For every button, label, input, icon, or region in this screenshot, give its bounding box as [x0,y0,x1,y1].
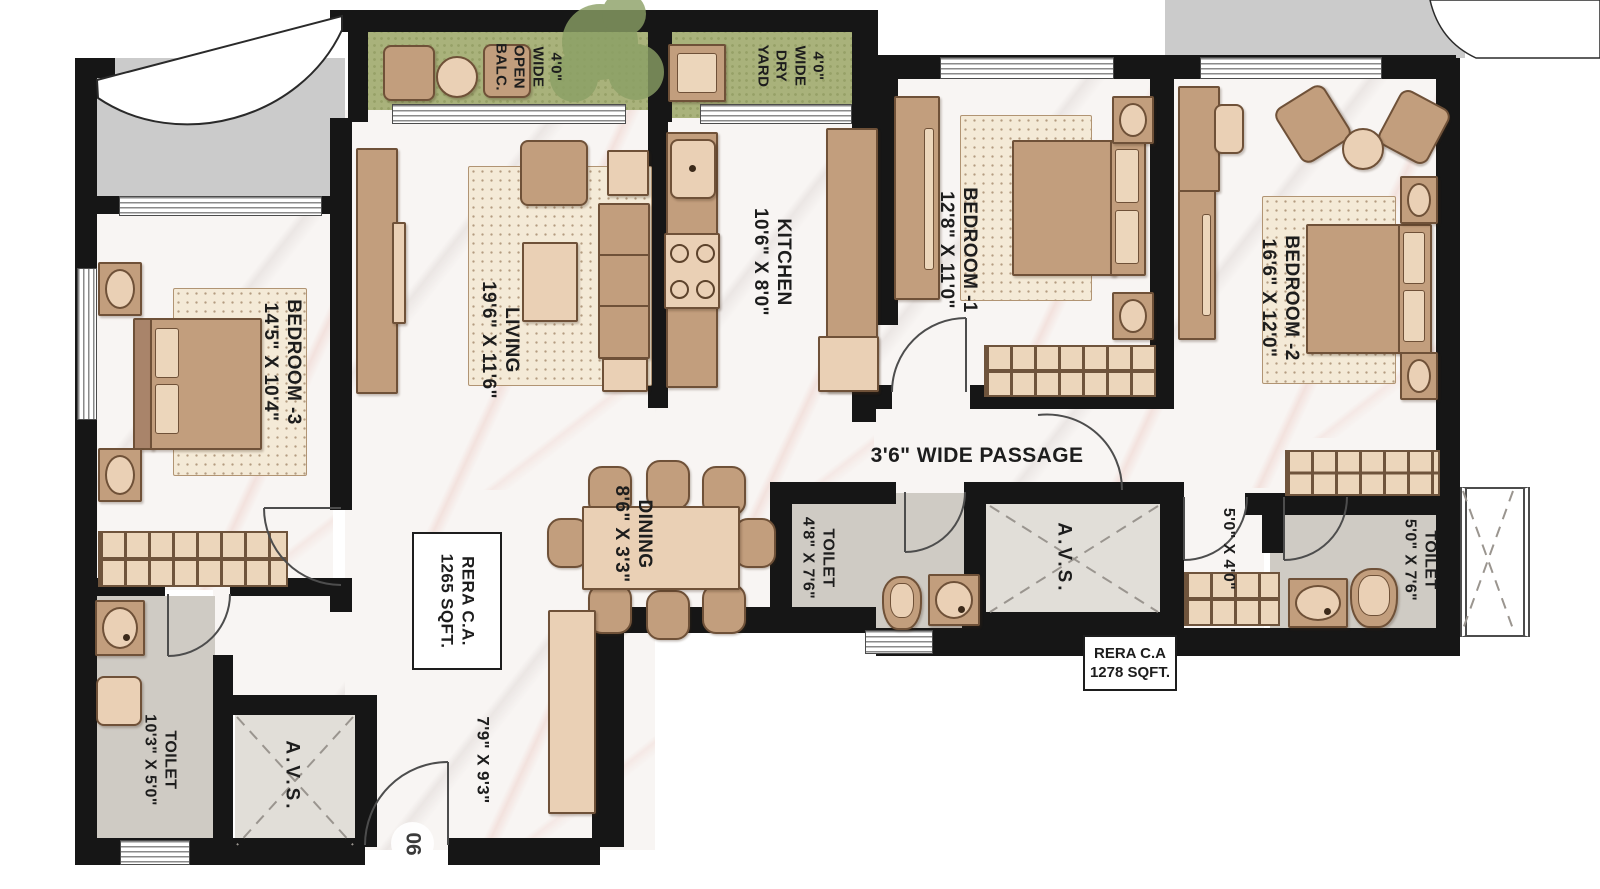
wall-top-balcony [330,10,878,32]
kitchen-fridge [818,336,879,392]
wall-terrace-nub [95,58,115,78]
floor-plan: 4'0" WIDE OPEN BALC. 4'0" WIDE DRY YARD … [0,0,1600,889]
room-dims: 19'6" X 11'6" [477,281,500,399]
basin-bowl [102,607,138,649]
basin-tap-icon [1324,608,1331,615]
dining-table [582,506,740,590]
wall-avs2-top [213,695,377,715]
bed3 [150,318,262,450]
window-bedroom3-top [119,196,322,216]
wall-avs1-right [1160,482,1184,638]
window-toilet1 [865,630,933,654]
sofa-living [598,203,650,359]
sofa-seam [600,254,648,256]
dry-yard-label-line: YARD [753,45,771,88]
window-bedroom3-left [77,268,97,420]
room-name: DINING [633,500,656,569]
avs1-label: A.V.S. [1052,522,1075,593]
bed1-nightstand-top [1112,96,1154,144]
room-dims: 10'6" X 8'0" [749,208,772,316]
bed1-nightstand-bottom [1112,292,1154,340]
wall-terrace-window-endR [318,196,346,214]
bed2-pillow-2 [1403,290,1425,342]
room-dims: 4'8" X 7'6" [798,517,818,599]
basin-bowl [935,581,973,619]
toilet1-basin [928,574,980,626]
basin-tap-icon [958,606,965,613]
avs-text: A.V.S. [280,740,303,811]
dresser-panel [1202,214,1211,316]
armchair-living [520,140,588,206]
wall-bed3-living-low [330,578,352,612]
wall-step-vertical [592,607,624,847]
wardrobe-bedroom2 [1285,450,1440,496]
dining-chair [646,590,690,640]
rera-inner-box: RERA C.A. 1265 SQFT. [412,532,502,670]
room-name: BEDROOM -2 [1280,235,1303,360]
dry-yard-label-line: WIDE [790,46,808,87]
top-right-ledge [1165,0,1465,58]
kitchen-stove [664,233,720,309]
dining-chair [734,518,776,568]
bed2 [1306,224,1406,354]
basin-tap-icon [123,634,130,641]
rera-line: RERA C.A. [457,556,478,646]
duct-shaft [1460,487,1530,637]
washing-machine [668,44,726,102]
toilet2-wc [1350,568,1398,628]
desk-chair-bedroom2 [1214,104,1244,154]
wardrobe-bedroom1 [984,345,1156,397]
room-name: TOILET [1420,531,1440,590]
sofa-end-table [602,358,648,392]
kitchen-sink [670,139,716,199]
living-label: LIVING 19'6" X 11'6" [477,281,523,399]
basin-bowl [1295,585,1341,621]
rera-line: 1265 SQFT. [436,554,457,649]
dresser-panel [924,128,934,270]
wall-balcony-left [348,28,368,122]
lamp-icon [1407,359,1431,393]
bedroom1-label: BEDROOM -1 12'8" X 11'0" [935,187,981,312]
toilet2-basin [1288,578,1348,628]
dresser-bedroom1 [894,96,940,300]
tv-panel [392,222,406,324]
dry-yard-label: 4'0" WIDE DRY YARD [753,45,826,88]
balcony-label-line: 4'0" [546,53,564,82]
bedroom2-table [1342,128,1384,170]
avs2-label: A.V.S. [280,740,303,811]
window-bedroom1 [940,57,1114,79]
sofa-seam [600,305,648,307]
kitchen-label: KITCHEN 10'6" X 8'0" [749,208,795,316]
bed1-pillow-1 [1115,149,1139,203]
balcony-label-line: BALC. [491,43,509,91]
bedroom2-label: BEDROOM -2 16'6" X 12'0" [1257,235,1303,360]
wall-terrace-window-endL [95,196,121,214]
unit-number-badge: 06 [391,822,434,865]
washer-door-icon [677,53,717,93]
lamp-icon [105,455,135,495]
bed2-pillow-1 [1403,232,1425,284]
toilet-center-label: TOILET 4'8" X 7'6" [798,517,837,599]
wall-bed3-living [330,118,352,510]
room-name: BEDROOM -3 [282,299,305,424]
wall-bottom-entry [448,838,600,865]
lamp-icon [1119,299,1147,333]
room-name: TOILET [818,529,838,588]
dry-yard-label-line: 4'0" [808,52,826,81]
balcony-table [436,56,478,98]
foyer-cabinet [548,610,596,814]
bed1-pillow-zone [1110,140,1146,276]
dry-yard-label-line: DRY [772,50,790,82]
window-bedroom2 [1200,57,1382,79]
room-dims: 8'6" X 3'3" [610,486,633,583]
room-name: KITCHEN [772,218,795,305]
terrace-floor [75,58,345,214]
burner-icon [670,280,689,299]
bed1 [1012,140,1116,276]
bed3-pillow-2 [155,384,179,434]
unit-number: 06 [400,832,424,855]
bed3-nightstand-bottom [98,448,142,502]
sink-drain-icon [689,165,696,172]
passage-text: 3'6" WIDE PASSAGE [871,444,1084,467]
room-name: BEDROOM -1 [958,187,981,312]
toilet-right-label: TOILET 5'0" X 7'6" [1400,519,1439,601]
rera-inner-text: RERA C.A. 1265 SQFT. [436,554,477,649]
rera-line: RERA C.A [1094,644,1166,664]
bed3-pillow-1 [155,328,179,378]
dining-chair [702,584,746,634]
passage-label: 3'6" WIDE PASSAGE [871,444,1084,468]
burner-icon [670,244,689,263]
lamp-icon [1407,183,1431,217]
bed3-nightstand-top [98,262,142,316]
room-dims: 12'8" X 11'0" [935,191,958,309]
toilet3-basin [95,600,145,656]
lobby-dims-label: 5'0" X 4'0" [1218,508,1238,590]
window-balcony [392,104,626,124]
room-dims: 5'0" X 4'0" [1218,508,1238,590]
room-name: TOILET [160,730,180,789]
wc-bowl [1358,575,1390,616]
dresser-bedroom2 [1178,190,1216,340]
toilet1-wc [882,576,922,630]
avs-text: A.V.S. [1052,522,1075,593]
lamp-icon [1119,103,1147,137]
wall-toilet2-left [1262,493,1284,553]
burner-icon [696,280,715,299]
vestibule-floor [213,588,348,703]
wall-right-outer [1436,75,1460,638]
toilet-left-label: TOILET 10'3" X 5'0" [140,714,179,806]
toilet3-wc [96,676,142,726]
balcony-label-line: WIDE [528,47,546,88]
window-dryyard [700,104,852,124]
wall-avs2-right [355,715,377,847]
wall-terrace-left [75,58,97,216]
room-dims: 7'9" X 9'3" [472,716,493,803]
wardrobe-bedroom3 [98,531,288,587]
bed1-pillow-2 [1115,210,1139,264]
bed2-nightstand-top [1400,176,1438,224]
room-name: LIVING [500,307,523,373]
bedroom3-label: BEDROOM -3 14'5" X 10'4" [259,299,305,424]
balcony-label: 4'0" WIDE OPEN BALC. [491,43,564,91]
rera-line: 1278 SQFT. [1090,663,1170,683]
rera-outer-box: RERA C.A 1278 SQFT. [1083,635,1177,691]
wall-avs1-top [986,482,1162,504]
burner-icon [696,244,715,263]
room-dims: 5'0" X 7'6" [1400,519,1420,601]
balcony-label-line: OPEN [510,45,528,89]
balcony-chair-1 [383,45,435,101]
bed2-nightstand-bottom [1400,352,1438,400]
wall-toilet3-right [213,655,233,847]
lamp-icon [105,269,135,309]
foyer-dims-label: 7'9" X 9'3" [472,716,493,803]
side-table-living [607,150,649,196]
dining-label: DINING 8'6" X 3'3" [610,486,656,583]
room-dims: 14'5" X 10'4" [259,303,282,422]
coffee-table [522,242,578,322]
room-dims: 16'6" X 12'0" [1257,239,1280,358]
room-dims: 10'3" X 5'0" [140,714,160,806]
window-toilet3 [120,840,190,865]
wc-bowl [890,583,914,618]
bed2-pillow-zone [1398,224,1432,354]
